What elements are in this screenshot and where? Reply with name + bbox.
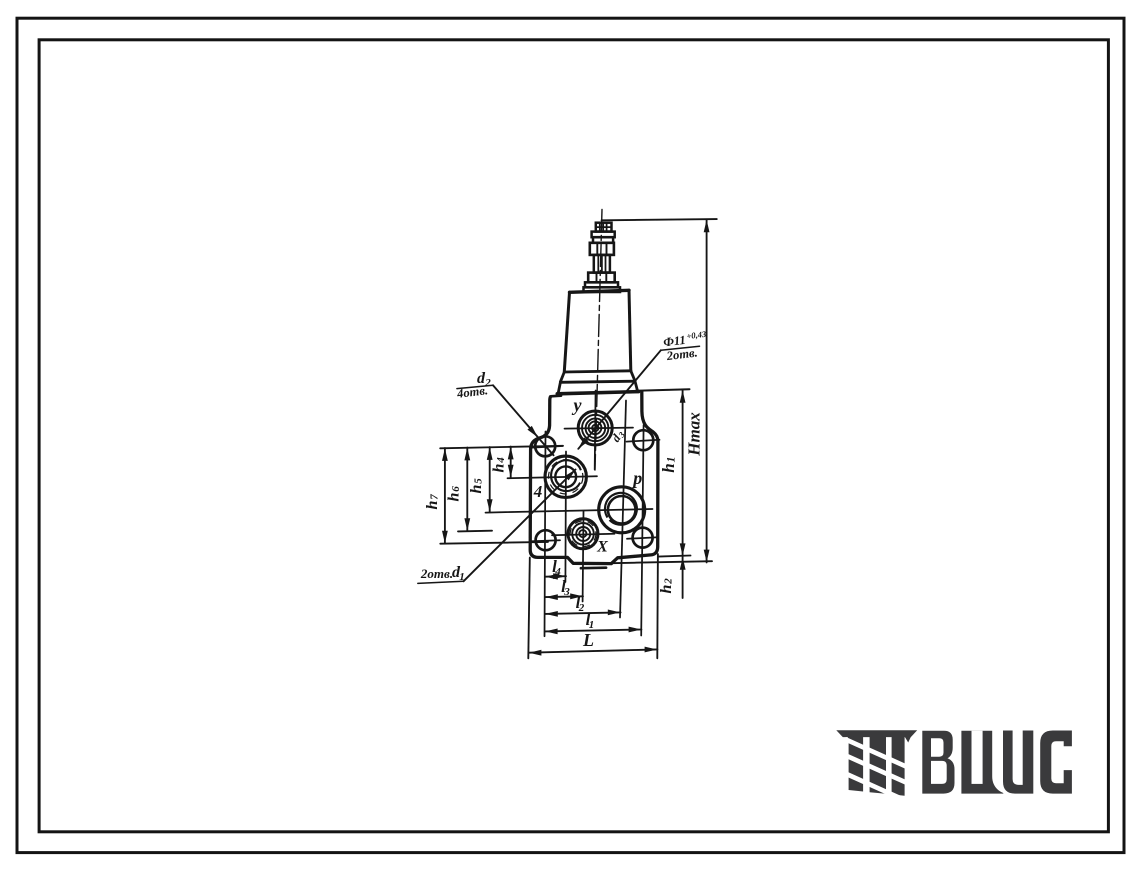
svg-text:р: р: [631, 468, 642, 488]
svg-text:h: h: [468, 484, 485, 493]
svg-text:4: 4: [533, 482, 543, 501]
svg-text:Нmax: Нmax: [685, 412, 704, 457]
svg-text:1: 1: [664, 457, 678, 463]
svg-text:h: h: [424, 500, 441, 509]
svg-text:h: h: [445, 492, 462, 501]
svg-text:6: 6: [450, 486, 462, 492]
svg-text:у: у: [572, 395, 583, 415]
svg-text:h: h: [658, 584, 675, 593]
svg-text:2: 2: [578, 602, 585, 614]
svg-text:5: 5: [473, 478, 485, 484]
svg-text:L: L: [582, 630, 594, 650]
svg-text:7: 7: [429, 494, 441, 500]
svg-text:Х: Х: [596, 539, 608, 556]
svg-text:h: h: [491, 463, 508, 472]
svg-text:h: h: [659, 463, 678, 472]
svg-text:2отв.: 2отв.: [420, 566, 453, 581]
svg-text:2: 2: [663, 578, 675, 585]
svg-text:+0,43: +0,43: [686, 329, 708, 341]
svg-text:3: 3: [563, 586, 570, 598]
svg-text:4: 4: [495, 457, 507, 464]
